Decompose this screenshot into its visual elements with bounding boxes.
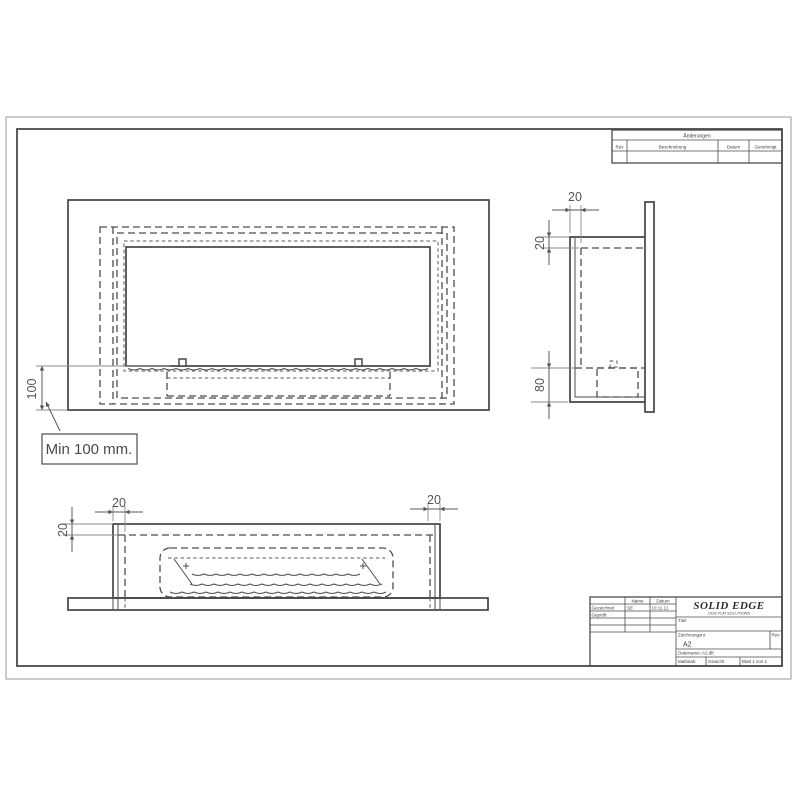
drawing-sheet: 100 Min 100 mm. 20 20 <box>0 0 800 800</box>
tb-scale-label: Maßstab <box>678 659 696 664</box>
dim-front-offset: 100 <box>25 379 39 400</box>
side-dimension-top-inset-20: 20 <box>533 220 579 265</box>
tb-row1-label: Gezeichnet <box>592 606 616 611</box>
window-clip-left <box>179 359 186 366</box>
bottom-view <box>68 524 488 610</box>
burner-mark-left <box>183 563 189 569</box>
front-window <box>126 247 430 366</box>
bottom-dimension-right-wall-20: 20 <box>410 493 458 521</box>
tb-row2-label: Geprüft <box>592 613 608 618</box>
dim-bottom-left-wall: 20 <box>112 496 126 510</box>
tb-row1-date: 10.11.11 <box>652 606 669 611</box>
min-100-callout: Min 100 mm. <box>42 402 137 464</box>
tb-title-label: Titel <box>678 618 686 623</box>
tb-header-name: Name <box>631 599 644 604</box>
revision-col-approved: Genehmigt <box>754 145 777 150</box>
tb-weight-label: Gewicht <box>708 659 725 664</box>
revision-col-description: Beschreibung <box>659 145 687 150</box>
side-dimension-burner-80: 80 <box>531 351 575 419</box>
tb-drawing-no-label: Zeichnungsnr. <box>678 633 706 638</box>
dim-side-burner: 80 <box>533 378 547 392</box>
front-view <box>68 200 489 410</box>
solid-edge-logo-subtitle: UGS PLM SOLUTIONS <box>708 611 751 616</box>
side-wall-plate <box>645 202 654 412</box>
dim-side-top-inset: 20 <box>533 236 547 250</box>
dim-bottom-top-inset: 20 <box>56 523 70 537</box>
revision-col-rev: Rev <box>615 145 624 150</box>
side-dimension-depth-20: 20 <box>552 190 599 243</box>
bottom-burner-box <box>160 548 393 597</box>
side-view <box>570 202 654 412</box>
tb-drawing-no-value: A2 <box>683 642 692 649</box>
side-burner <box>597 368 638 397</box>
revision-table-title: Änderungen <box>683 133 710 140</box>
title-block: Name Datum Gezeichnet SE 10.11.11 Geprüf… <box>590 597 782 666</box>
bottom-dimension-top-inset-20: 20 <box>56 507 118 552</box>
revision-col-date: Datum <box>727 145 741 150</box>
tb-filename: Dateiname: A2.dft <box>678 651 715 656</box>
dim-side-depth: 20 <box>568 190 582 204</box>
tb-sheet-label: Blatt 1 von 1 <box>742 659 768 664</box>
tb-rev-label: Rev <box>772 633 781 638</box>
tb-header-date: Datum <box>656 599 670 604</box>
tb-row1-name: SE <box>627 606 633 611</box>
drawing-canvas: 100 Min 100 mm. 20 20 <box>0 0 800 800</box>
bottom-dimension-left-wall-20: 20 <box>95 496 143 532</box>
bottom-wall-plate <box>68 598 488 610</box>
callout-text: Min 100 mm. <box>46 441 133 458</box>
revision-table: Änderungen Rev Beschreibung Datum Genehm… <box>612 130 782 163</box>
window-clip-right <box>355 359 362 366</box>
dim-bottom-right-wall: 20 <box>427 493 441 507</box>
